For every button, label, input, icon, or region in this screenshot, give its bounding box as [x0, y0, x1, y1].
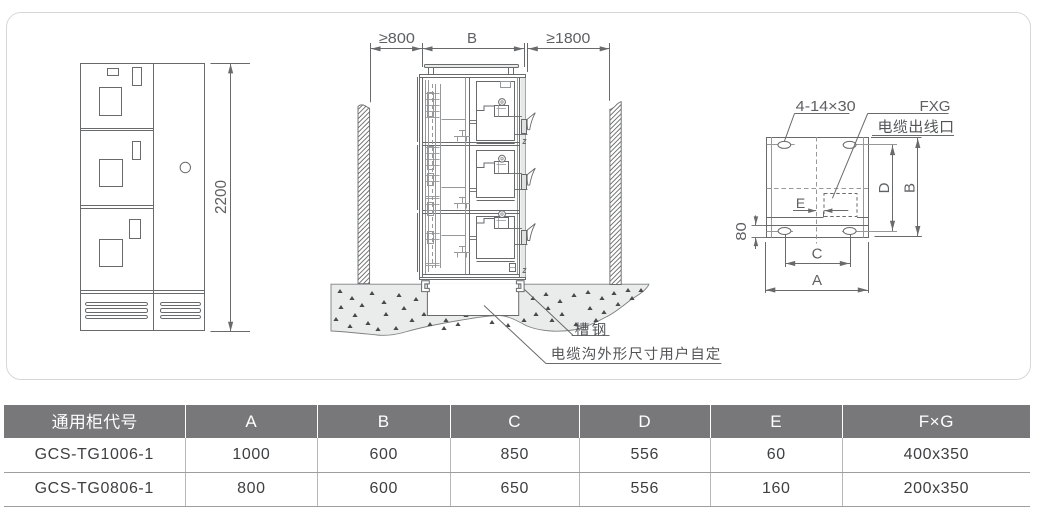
svg-text:80: 80	[734, 222, 750, 241]
svg-text:A: A	[812, 272, 822, 289]
svg-text:4-14×30: 4-14×30	[796, 98, 856, 115]
svg-text:2200: 2200	[213, 180, 230, 214]
svg-text:FXG: FXG	[920, 98, 951, 115]
svg-text:B: B	[901, 183, 918, 193]
svg-text:≥800: ≥800	[379, 30, 415, 47]
svg-text:C: C	[812, 246, 823, 263]
svg-text:≥1800: ≥1800	[546, 30, 590, 47]
svg-text:E: E	[796, 195, 805, 211]
svg-text:B: B	[467, 30, 477, 47]
svg-text:D: D	[876, 182, 893, 193]
